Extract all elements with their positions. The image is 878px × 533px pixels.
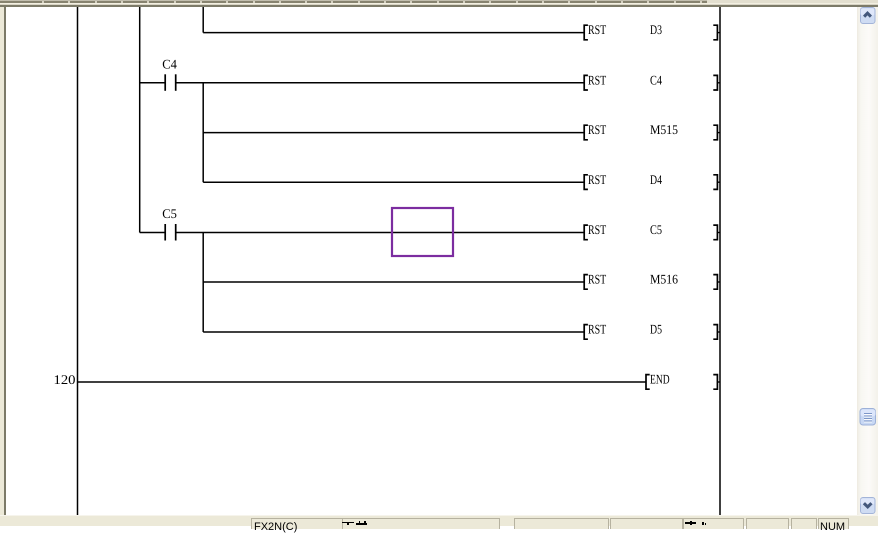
svg-text:M516: M516 (650, 272, 678, 287)
svg-text:D4: D4 (650, 172, 662, 187)
svg-text:RST: RST (588, 72, 606, 87)
svg-text:C4: C4 (650, 72, 662, 87)
svg-text:RST: RST (588, 322, 606, 337)
svg-text:D3: D3 (650, 22, 662, 37)
svg-text:D5: D5 (650, 322, 662, 337)
svg-text:RST: RST (588, 122, 606, 137)
svg-text:C5: C5 (650, 222, 662, 237)
svg-text:RST: RST (588, 22, 606, 37)
svg-text:M515: M515 (650, 122, 678, 137)
svg-text:RST: RST (588, 172, 606, 187)
svg-text:END: END (650, 372, 670, 387)
svg-text:RST: RST (588, 272, 606, 287)
svg-text:RST: RST (588, 222, 606, 237)
svg-text:C5: C5 (162, 206, 177, 221)
svg-text:120: 120 (54, 372, 76, 387)
svg-text:C4: C4 (162, 56, 177, 71)
